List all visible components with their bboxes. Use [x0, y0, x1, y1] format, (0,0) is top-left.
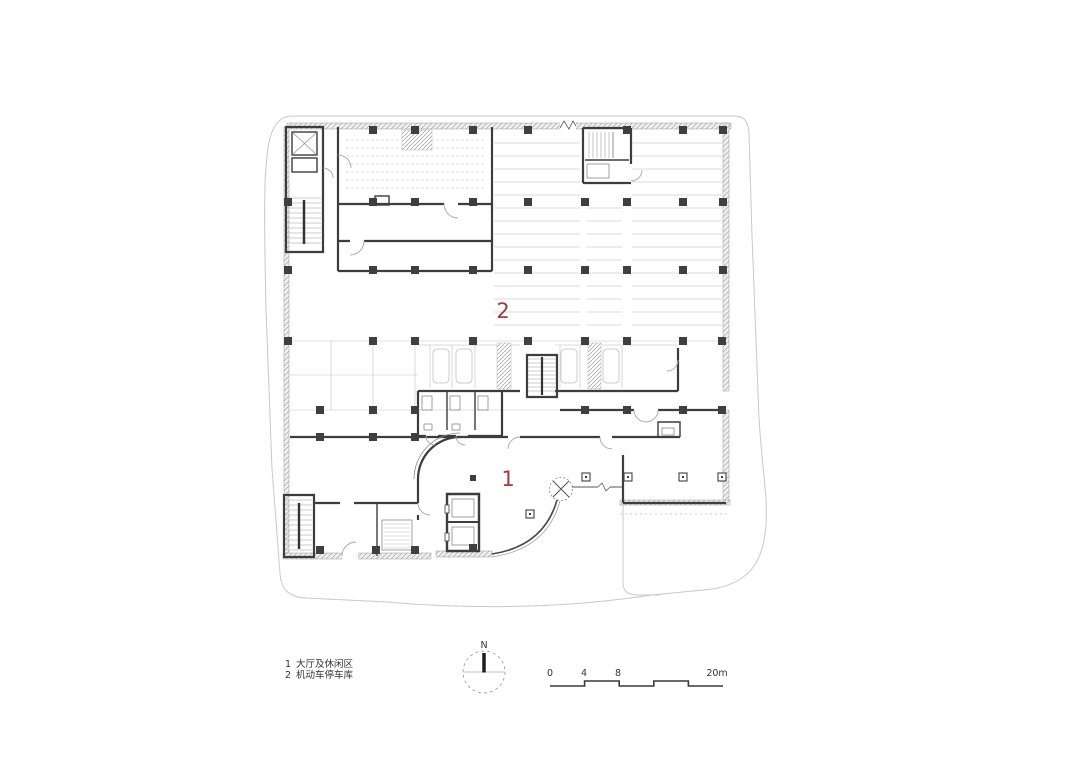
scale-tick-4: 4	[581, 668, 587, 679]
area-labels: 2 1	[496, 299, 514, 491]
lobby	[284, 433, 622, 557]
middle-band-rooms	[418, 348, 726, 437]
floor-plan-page: 2 1 1 大厅及休闲区 2 机动车停车库 N 0 4 8 20m	[0, 0, 1080, 764]
upper-left-rooms	[286, 127, 492, 271]
legend-label-2: 机动车停车库	[296, 669, 354, 681]
ramp-hatch	[588, 343, 601, 389]
revolving-door	[550, 478, 573, 501]
stair-core-top	[583, 128, 631, 183]
ramp-hatch	[497, 343, 511, 389]
north-label: N	[480, 640, 487, 651]
elevator-bank	[445, 494, 479, 551]
exterior-hatched-walls	[283, 123, 731, 561]
floor-plan-canvas: 2 1 1 大厅及休闲区 2 机动车停车库 N 0 4 8 20m	[0, 0, 1080, 764]
open-columns	[526, 473, 726, 518]
legend-label-1: 大厅及休闲区	[296, 658, 354, 670]
scale-bar: 0 4 8 20m	[547, 668, 728, 686]
scale-tick-20m: 20m	[706, 668, 727, 679]
wall-break-symbol	[560, 119, 576, 132]
scale-tick-0: 0	[547, 668, 553, 679]
legend: 1 大厅及休闲区 2 机动车停车库	[285, 658, 354, 681]
area-label-1: 1	[501, 467, 514, 491]
wall-break-symbol	[598, 483, 610, 491]
area-label-2: 2	[496, 299, 509, 323]
curved-curtain-wall	[492, 500, 560, 557]
north-arrow-icon: N	[463, 640, 505, 693]
bottom-right-room	[623, 455, 726, 503]
parking-stall-lines	[288, 143, 726, 410]
scale-tick-8: 8	[615, 668, 621, 679]
legend-num-2: 2	[285, 670, 291, 681]
legend-num-1: 1	[285, 659, 291, 670]
site-boundary	[265, 116, 767, 607]
